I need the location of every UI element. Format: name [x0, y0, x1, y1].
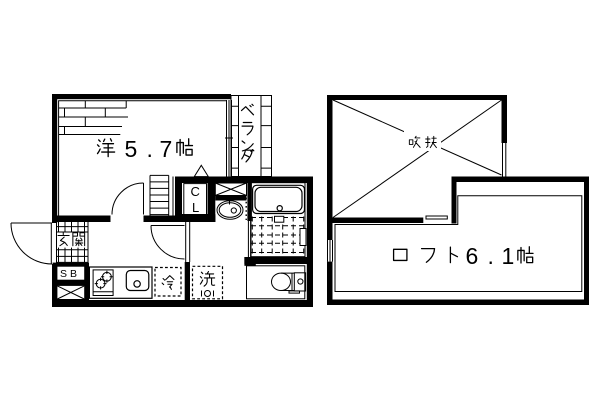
svg-text:.: .: [147, 136, 153, 162]
svg-text:5: 5: [125, 136, 138, 162]
svg-text:7: 7: [160, 136, 173, 162]
svg-text:C: C: [191, 184, 200, 199]
svg-text:.: .: [488, 243, 494, 269]
svg-text:L: L: [192, 200, 199, 215]
svg-text:1: 1: [502, 243, 515, 269]
svg-text:6: 6: [466, 243, 479, 269]
svg-text:SB: SB: [60, 268, 80, 280]
